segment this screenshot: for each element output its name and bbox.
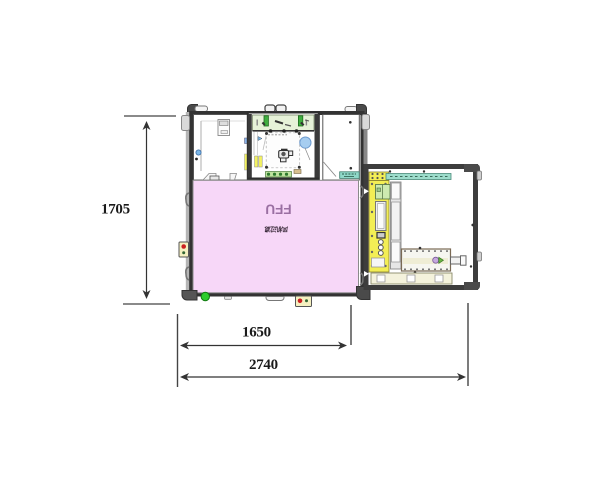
svg-text:1650: 1650: [242, 325, 271, 341]
svg-text:1705: 1705: [101, 202, 130, 218]
svg-text:2740: 2740: [249, 357, 278, 373]
svg-text:风机过滤: 风机过滤: [264, 225, 288, 233]
svg-text:FFU: FFU: [265, 202, 291, 217]
